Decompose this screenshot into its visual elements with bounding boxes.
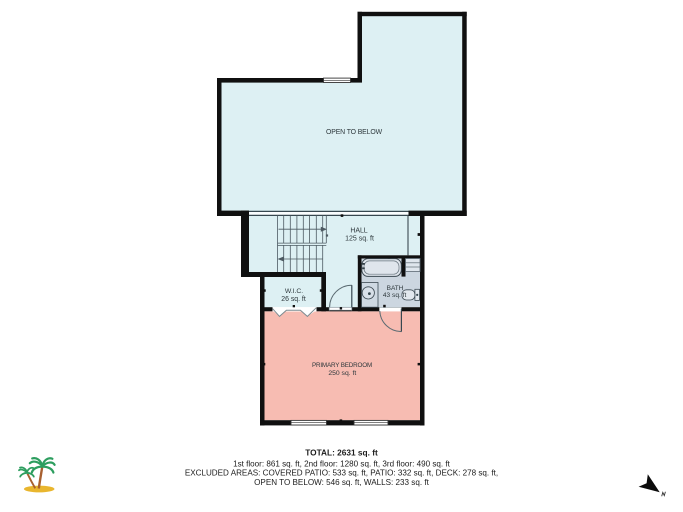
svg-text:43 sq. ft: 43 sq. ft: [383, 292, 407, 299]
svg-text:125 sq. ft: 125 sq. ft: [345, 236, 374, 243]
svg-text:1st floor: 861 sq. ft, 2nd flo: 1st floor: 861 sq. ft, 2nd floor: 1280 s…: [233, 460, 451, 469]
svg-text:HALL: HALL: [350, 228, 367, 235]
svg-text:W.I.C.: W.I.C.: [285, 288, 303, 295]
svg-text:PRIMARY BEDROOM: PRIMARY BEDROOM: [312, 362, 372, 369]
svg-text:TOTAL: 2631 sq. ft: TOTAL: 2631 sq. ft: [305, 448, 378, 458]
svg-text:250 sq. ft: 250 sq. ft: [328, 370, 356, 377]
svg-text:26 sq. ft: 26 sq. ft: [281, 296, 306, 303]
svg-text:BATH: BATH: [387, 285, 404, 292]
svg-text:EXCLUDED AREAS: COVERED PATIO:: EXCLUDED AREAS: COVERED PATIO: 533 sq. f…: [185, 469, 498, 478]
svg-text:OPEN TO BELOW: OPEN TO BELOW: [326, 129, 383, 136]
svg-text:OPEN TO BELOW: 546 sq. ft, WAL: OPEN TO BELOW: 546 sq. ft, WALLS: 233 sq…: [254, 478, 429, 487]
